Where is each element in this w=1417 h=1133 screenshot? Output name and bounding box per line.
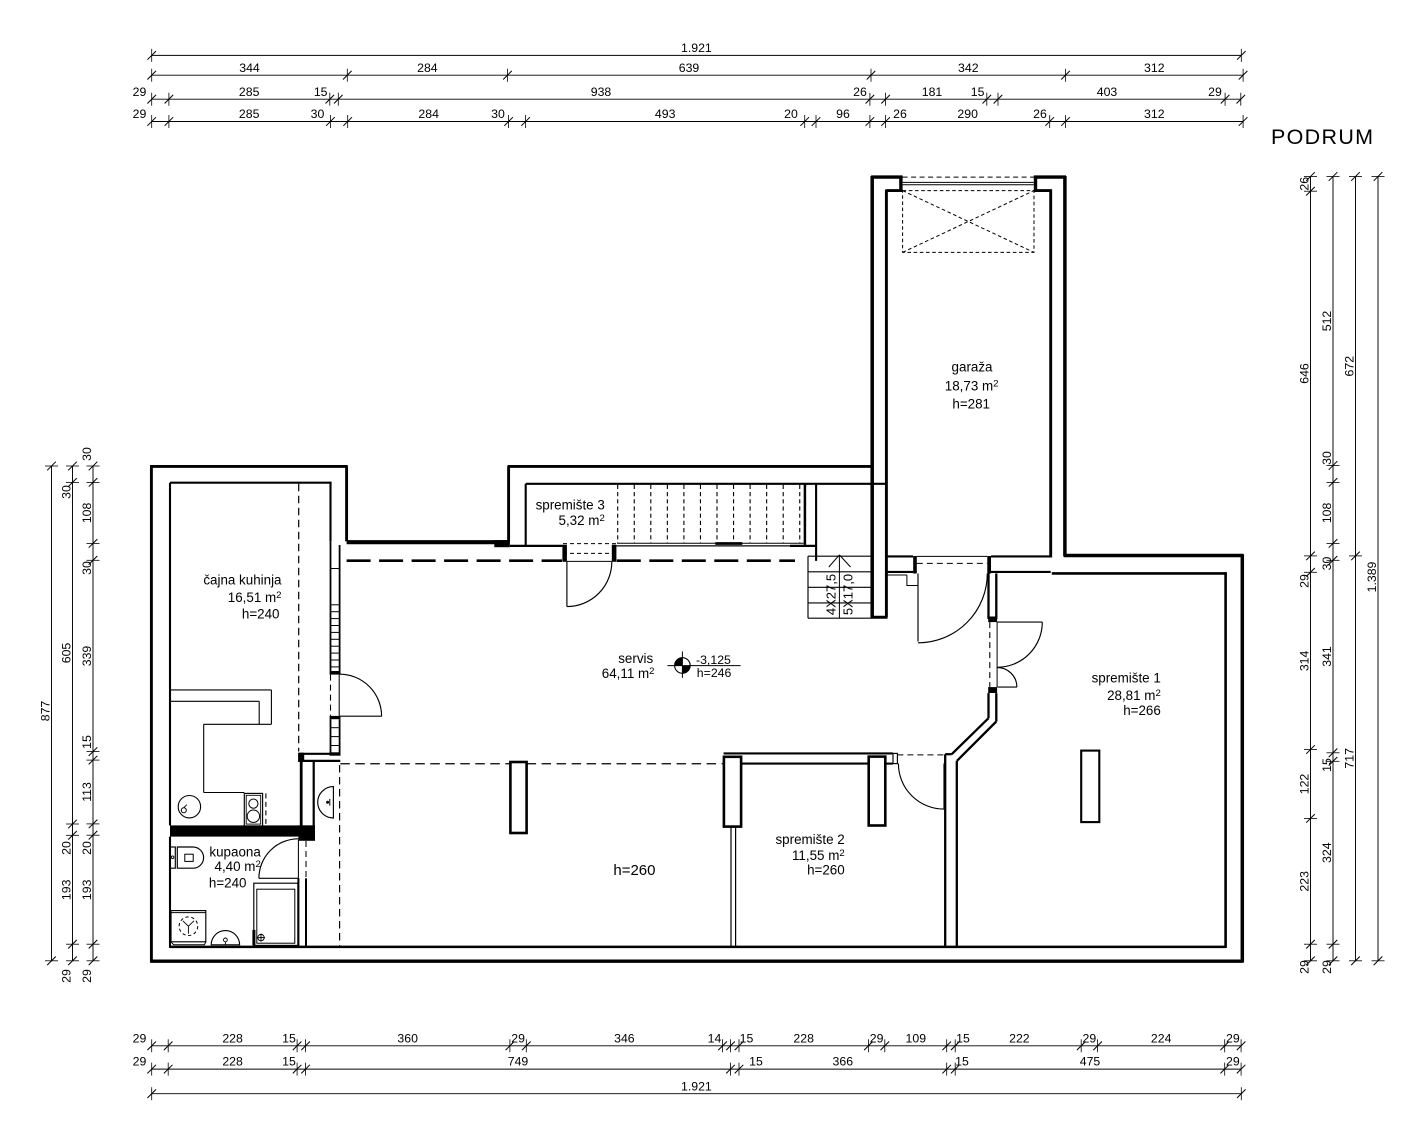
svg-text:324: 324: [1320, 842, 1334, 863]
svg-text:493: 493: [655, 107, 676, 121]
svg-text:1.921: 1.921: [681, 41, 712, 55]
svg-text:15: 15: [282, 1055, 296, 1069]
svg-text:749: 749: [508, 1055, 529, 1069]
svg-text:15: 15: [80, 735, 94, 749]
svg-text:64,11 m2: 64,11 m2: [602, 666, 655, 681]
svg-text:181: 181: [922, 85, 943, 99]
svg-text:403: 403: [1097, 85, 1118, 99]
svg-text:15: 15: [314, 85, 328, 99]
svg-text:109: 109: [906, 1031, 927, 1045]
svg-text:h=260: h=260: [807, 863, 845, 878]
svg-text:639: 639: [679, 61, 700, 75]
svg-text:360: 360: [397, 1031, 418, 1045]
svg-text:366: 366: [833, 1055, 854, 1069]
svg-text:938: 938: [591, 85, 612, 99]
svg-text:30: 30: [80, 447, 94, 461]
svg-text:30: 30: [1320, 451, 1334, 465]
svg-text:672: 672: [1343, 356, 1357, 377]
svg-text:193: 193: [80, 879, 94, 900]
svg-text:-3,125: -3,125: [696, 653, 731, 667]
svg-text:spremište 1: spremište 1: [1092, 670, 1161, 685]
svg-text:čajna kuhinja: čajna kuhinja: [203, 573, 282, 588]
svg-text:30: 30: [491, 107, 505, 121]
svg-text:29: 29: [80, 969, 94, 983]
svg-text:312: 312: [1144, 61, 1165, 75]
svg-text:5,32 m2: 5,32 m2: [559, 513, 605, 528]
svg-text:spremište 2: spremište 2: [775, 832, 844, 847]
svg-text:228: 228: [222, 1055, 243, 1069]
svg-text:30: 30: [80, 561, 94, 575]
svg-text:28,81 m2: 28,81 m2: [1107, 688, 1161, 703]
svg-text:1.389: 1.389: [1365, 561, 1379, 592]
svg-text:717: 717: [1343, 748, 1357, 769]
svg-text:h=246: h=246: [697, 666, 732, 680]
svg-text:512: 512: [1320, 311, 1334, 332]
svg-text:h=240: h=240: [209, 876, 247, 891]
svg-text:29: 29: [60, 969, 74, 983]
svg-text:15: 15: [955, 1055, 969, 1069]
svg-text:garaža: garaža: [952, 360, 993, 375]
svg-text:228: 228: [222, 1031, 243, 1045]
svg-text:11,55 m2: 11,55 m2: [792, 848, 845, 863]
svg-text:341: 341: [1320, 646, 1334, 667]
svg-text:20: 20: [60, 841, 74, 855]
svg-text:29: 29: [1226, 1055, 1240, 1069]
svg-text:344: 344: [239, 61, 260, 75]
svg-text:29: 29: [1298, 574, 1312, 588]
svg-text:26: 26: [893, 107, 907, 121]
svg-text:26: 26: [1033, 107, 1047, 121]
svg-text:108: 108: [1320, 502, 1334, 523]
svg-text:314: 314: [1298, 650, 1312, 671]
svg-text:h=240: h=240: [242, 607, 280, 622]
svg-text:29: 29: [511, 1031, 525, 1045]
svg-text:20: 20: [784, 107, 798, 121]
svg-text:14: 14: [708, 1031, 722, 1045]
svg-text:285: 285: [239, 107, 260, 121]
svg-text:122: 122: [1298, 774, 1312, 795]
svg-text:29: 29: [1083, 1031, 1097, 1045]
svg-text:193: 193: [60, 879, 74, 900]
svg-text:h=281: h=281: [952, 397, 990, 412]
svg-text:15: 15: [956, 1031, 970, 1045]
svg-text:18,73 m2: 18,73 m2: [945, 378, 999, 393]
svg-text:PODRUM: PODRUM: [1271, 125, 1374, 149]
svg-text:113: 113: [80, 782, 94, 802]
svg-text:15: 15: [971, 85, 985, 99]
svg-text:servis: servis: [618, 651, 653, 666]
svg-text:30: 30: [311, 107, 325, 121]
svg-text:29: 29: [133, 1055, 147, 1069]
svg-text:29: 29: [1208, 85, 1222, 99]
svg-text:223: 223: [1298, 871, 1312, 892]
svg-text:29: 29: [1298, 960, 1312, 974]
svg-text:30: 30: [60, 485, 74, 499]
svg-text:605: 605: [60, 643, 74, 664]
svg-text:4,40 m2: 4,40 m2: [215, 859, 261, 874]
svg-text:1.921: 1.921: [681, 1079, 712, 1093]
svg-text:26: 26: [853, 85, 867, 99]
svg-text:877: 877: [39, 701, 53, 722]
svg-text:4X27,5: 4X27,5: [824, 574, 839, 615]
svg-text:5X17,0: 5X17,0: [841, 574, 856, 615]
svg-text:kupaona: kupaona: [209, 845, 261, 860]
svg-text:224: 224: [1151, 1031, 1172, 1045]
svg-text:26: 26: [1298, 177, 1312, 191]
svg-text:29: 29: [870, 1031, 884, 1045]
svg-text:285: 285: [239, 85, 260, 99]
svg-text:96: 96: [836, 107, 850, 121]
svg-text:h=260: h=260: [613, 862, 655, 879]
svg-text:29: 29: [133, 1031, 147, 1045]
svg-text:29: 29: [1320, 960, 1334, 974]
svg-text:20: 20: [80, 841, 94, 855]
svg-text:16,51 m2: 16,51 m2: [228, 590, 282, 605]
svg-text:475: 475: [1080, 1055, 1101, 1069]
svg-text:342: 342: [958, 61, 979, 75]
svg-text:h=266: h=266: [1123, 703, 1161, 718]
svg-text:646: 646: [1298, 363, 1312, 384]
svg-text:339: 339: [80, 646, 94, 667]
svg-text:29: 29: [133, 107, 147, 121]
svg-text:15: 15: [740, 1031, 754, 1045]
svg-text:284: 284: [417, 61, 438, 75]
svg-text:222: 222: [1009, 1031, 1030, 1045]
svg-text:312: 312: [1144, 107, 1165, 121]
svg-text:284: 284: [418, 107, 439, 121]
svg-text:29: 29: [133, 85, 147, 99]
svg-text:228: 228: [793, 1031, 814, 1045]
svg-text:29: 29: [1226, 1031, 1240, 1045]
svg-text:346: 346: [614, 1031, 635, 1045]
svg-text:spremište 3: spremište 3: [536, 498, 605, 513]
svg-text:30: 30: [1320, 557, 1334, 571]
svg-text:15: 15: [749, 1055, 763, 1069]
svg-text:15: 15: [282, 1031, 296, 1045]
svg-text:15: 15: [1320, 758, 1334, 772]
svg-text:108: 108: [80, 502, 94, 523]
svg-text:290: 290: [957, 107, 978, 121]
